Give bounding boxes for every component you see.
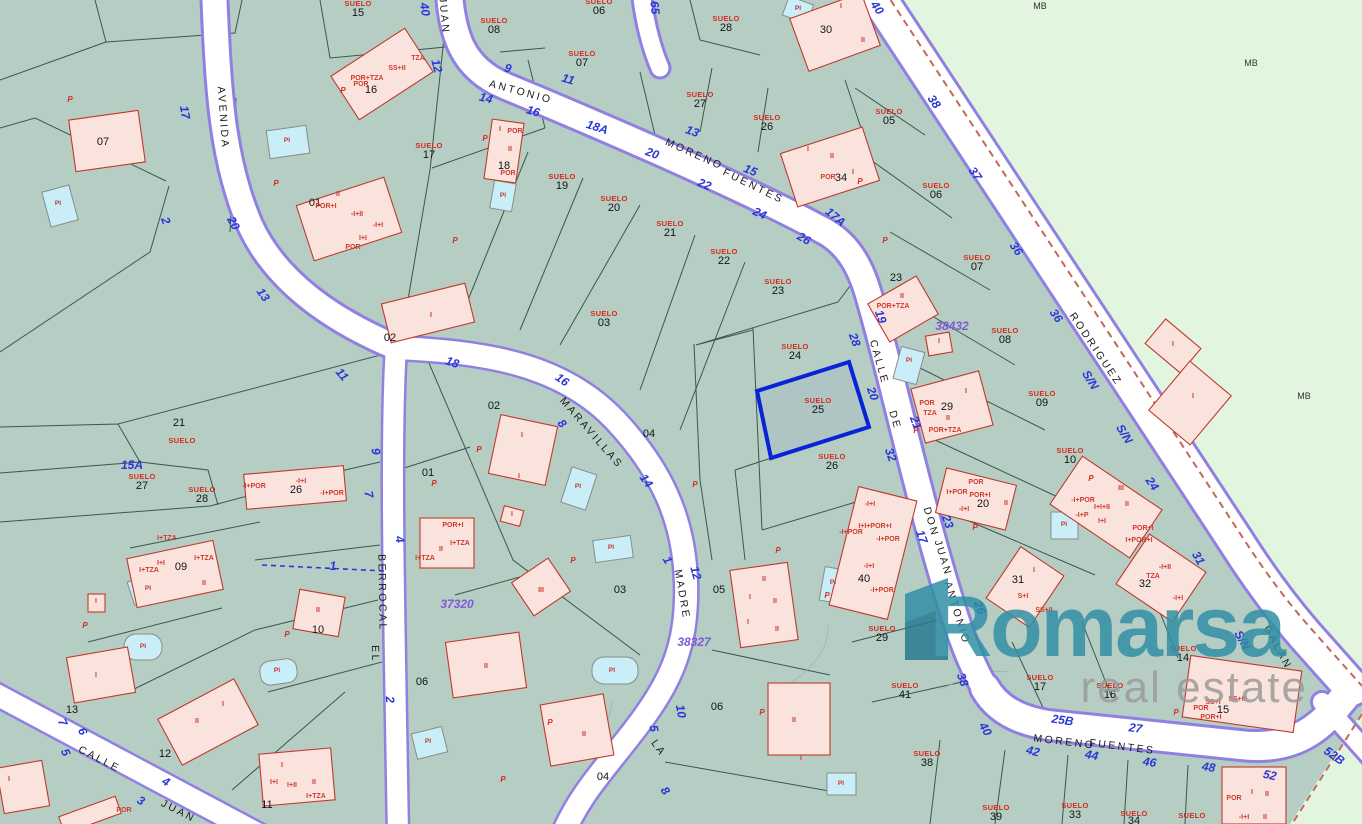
building-storey-label: I bbox=[840, 3, 842, 10]
building-storey-label: II bbox=[946, 415, 950, 422]
building-storey-label: -I+I bbox=[296, 478, 306, 485]
building-storey-label: I bbox=[747, 619, 749, 626]
pool-label: PI bbox=[55, 200, 61, 207]
building-storey-label: II bbox=[484, 663, 488, 670]
parcel-marker-label: P bbox=[500, 775, 506, 784]
building-storey-label: I bbox=[499, 126, 501, 133]
building-storey-label: I bbox=[511, 511, 513, 518]
parcel-marker-label: P bbox=[913, 426, 919, 435]
parcel-number-label: 28 bbox=[196, 493, 208, 505]
parcel-marker-label: P bbox=[972, 523, 978, 532]
building-storey-label: POR bbox=[820, 174, 835, 181]
building-storey-label: II bbox=[316, 607, 320, 614]
building-storey-label: I+II bbox=[287, 782, 297, 789]
parcel-number-label: 07 bbox=[576, 57, 588, 69]
parcel-marker-label: P bbox=[547, 718, 553, 727]
cadastral-ref-label: 37320 bbox=[440, 597, 474, 611]
pool-label: PI bbox=[838, 780, 844, 787]
house-number-label: 5 bbox=[58, 746, 74, 758]
parcel-marker-label: P bbox=[452, 236, 458, 245]
pool-label: PI bbox=[795, 5, 801, 12]
building-storey-label: III bbox=[1118, 485, 1124, 492]
parcel-marker-label: P bbox=[476, 445, 482, 454]
building-storey-label: II bbox=[1263, 814, 1267, 821]
building-storey-label: -I+I bbox=[865, 501, 875, 508]
building-storey-label: II bbox=[1004, 500, 1008, 507]
building-storey-label: I bbox=[1251, 789, 1253, 796]
parcel-number-label: 20 bbox=[608, 202, 620, 214]
building-storey-label: -I+POR bbox=[320, 490, 344, 497]
building-storey-label: I bbox=[1033, 567, 1035, 574]
parcel-number-label: 07 bbox=[97, 136, 109, 148]
building-storey-label: POR+I bbox=[315, 203, 336, 210]
parcel-number-label: 07 bbox=[971, 261, 983, 273]
building-storey-label: II bbox=[900, 293, 904, 300]
house-number-label: 14 bbox=[478, 90, 495, 107]
parcel-number-label: 09 bbox=[1036, 397, 1048, 409]
parcel-marker-label: P bbox=[284, 630, 290, 639]
parcel-number-label: 34 bbox=[1128, 815, 1140, 824]
mb-zone-label: MB bbox=[1033, 1, 1047, 11]
parcel-number-label: 23 bbox=[890, 272, 902, 284]
house-number-label: 3 bbox=[135, 793, 148, 809]
parcel-marker-label: P bbox=[273, 179, 279, 188]
building-storey-label: I+TZA bbox=[139, 567, 159, 574]
building-storey-label: II bbox=[861, 37, 865, 44]
house-number-label: 48 bbox=[1200, 759, 1217, 775]
parcel-number-label: 03 bbox=[598, 317, 610, 329]
building-storey-label: I+POR bbox=[946, 489, 967, 496]
house-number-label: 15A bbox=[121, 458, 143, 472]
parcel-number-label: 19 bbox=[556, 180, 568, 192]
building-storey-label: I+I bbox=[359, 235, 367, 242]
pool-label: PI bbox=[575, 483, 581, 490]
building-storey-label: I+TZA bbox=[306, 793, 326, 800]
parcel-marker-label: P bbox=[482, 134, 488, 143]
building-storey-label: POR bbox=[500, 170, 515, 177]
parcel-number-label: 27 bbox=[136, 480, 148, 492]
pool-label: PI bbox=[274, 667, 280, 674]
building-storey-label: POR+I bbox=[1132, 525, 1153, 532]
suelo-label: SUELO bbox=[1178, 811, 1205, 820]
building-storey-label: -I+POR bbox=[839, 529, 863, 536]
house-number-label: 65 bbox=[647, 0, 662, 15]
building-storey-label: -I+POR bbox=[242, 483, 266, 490]
parcel-number-label: 25 bbox=[812, 404, 824, 416]
house-number-label: 46 bbox=[1141, 754, 1158, 770]
building-storey-label: II bbox=[202, 580, 206, 587]
parcel-marker-label: P bbox=[759, 708, 765, 717]
house-number-label: 13 bbox=[254, 285, 273, 304]
building-storey-label: -I+II bbox=[1159, 564, 1171, 571]
parcel-number-label: 06 bbox=[711, 701, 723, 713]
building-storey-label: II bbox=[775, 626, 779, 633]
house-number-label: 28 bbox=[846, 330, 864, 349]
house-number-label: 16 bbox=[525, 103, 542, 120]
pool-label: PI bbox=[425, 738, 431, 745]
building-storey-label: POR+TZA bbox=[929, 427, 962, 434]
parcel-number-label: 11 bbox=[261, 799, 272, 811]
parcel-number-label: 06 bbox=[593, 5, 605, 17]
parcel-marker-label: P bbox=[692, 480, 698, 489]
house-number-label: S/N bbox=[1113, 422, 1136, 447]
building-storey-label: I+I+II bbox=[1094, 504, 1110, 511]
building-storey-label: SS+II bbox=[388, 65, 405, 72]
pool-label: PI bbox=[830, 579, 836, 586]
house-number-label: 40 bbox=[976, 719, 995, 739]
parcel-marker-label: P bbox=[1088, 474, 1094, 483]
building-storey-label: I+I bbox=[157, 560, 165, 567]
parcel-marker-label: P bbox=[857, 177, 863, 186]
building-storey-label: I bbox=[430, 312, 432, 319]
building-storey-label: POR bbox=[507, 128, 522, 135]
building-storey-label: I+I+POR+I bbox=[858, 523, 891, 530]
parcel-marker-label: P bbox=[775, 546, 781, 555]
building-storey-label: POR+I bbox=[442, 522, 463, 529]
building-storey-label: I bbox=[965, 388, 967, 395]
building-storey-label: III bbox=[538, 587, 544, 594]
parcel-number-label: 17 bbox=[423, 149, 435, 161]
house-number-label: S/N bbox=[1079, 368, 1102, 393]
logo: Romarsa real estate bbox=[905, 578, 1308, 712]
building-storey-label: I bbox=[518, 473, 520, 480]
parcel-marker-label: P bbox=[824, 591, 830, 600]
building-storey-label: II bbox=[312, 779, 316, 786]
street-name-label: LA bbox=[648, 738, 668, 759]
parcel-number-label: 38 bbox=[921, 757, 933, 769]
parcel-number-label: 21 bbox=[173, 417, 185, 429]
building-storey-label: I bbox=[749, 594, 751, 601]
cadastral-ref-label: 38327 bbox=[677, 635, 712, 649]
mb-zone-label: MB bbox=[1297, 391, 1311, 401]
house-number-label: 44 bbox=[1083, 747, 1100, 763]
house-number-label: 42 bbox=[1024, 742, 1042, 759]
building-storey-label: I+TZA bbox=[415, 555, 435, 562]
building-storey-label: POR bbox=[353, 81, 368, 88]
parcel-number-label: 33 bbox=[1069, 809, 1081, 821]
building-storey-label: -I+II bbox=[351, 211, 363, 218]
building-storey-label: I bbox=[95, 598, 97, 605]
house-number-label: 24 bbox=[1142, 473, 1162, 493]
parcel-number-label: 10 bbox=[312, 624, 324, 636]
building-storey-label: II bbox=[582, 731, 586, 738]
parcel-marker-label: P bbox=[67, 95, 73, 104]
parcel-number-label: 04 bbox=[597, 771, 609, 783]
suelo-label: SUELO bbox=[168, 436, 195, 445]
pool-label: PI bbox=[609, 667, 615, 674]
building-storey-label: I bbox=[95, 672, 97, 679]
parcel-number-label: 06 bbox=[930, 189, 942, 201]
street-name-label: JUAN bbox=[436, 0, 451, 35]
parcel-number-label: 28 bbox=[720, 22, 732, 34]
house-number-label: 5 bbox=[646, 724, 661, 733]
parcel-number-label: 29 bbox=[876, 632, 888, 644]
building-storey-label: II bbox=[830, 153, 834, 160]
building-storey-label: -I+I bbox=[959, 506, 969, 513]
building-storey-label: TZA bbox=[411, 55, 425, 62]
parcel-number-label: 10 bbox=[1064, 454, 1076, 466]
parcel-number-label: 30 bbox=[820, 24, 832, 36]
cadastral-ref-label: 38432 bbox=[935, 319, 969, 333]
parcel-number-label: 26 bbox=[761, 121, 773, 133]
parcel-marker-label: P bbox=[340, 86, 346, 95]
parcel-number-label: 41 bbox=[899, 689, 911, 701]
building-storey-label: I bbox=[222, 701, 224, 708]
house-number-label: 40 bbox=[417, 1, 433, 18]
logo-brand-text: Romarsa bbox=[930, 579, 1287, 675]
building-storey-label: I bbox=[852, 169, 854, 176]
building-storey-label: POR+TZA bbox=[877, 303, 910, 310]
logo-tagline-text: real estate bbox=[1081, 663, 1308, 712]
cadastral-map-viewport[interactable]: AVENIDAJUANANTONIOMORENOFUENTESRODRIGUEZ… bbox=[0, 0, 1362, 824]
building-storey-label: I+I bbox=[1098, 518, 1106, 525]
street-name-label: BERROCAL bbox=[375, 554, 388, 632]
building-storey-label: POR bbox=[116, 807, 131, 814]
building-storey-label: POR bbox=[919, 400, 934, 407]
parcel-number-label: 02 bbox=[488, 400, 500, 412]
building-storey-label: II bbox=[762, 576, 766, 583]
building-storey-label: I bbox=[800, 755, 802, 762]
cadastral-map: AVENIDAJUANANTONIOMORENOFUENTESRODRIGUEZ… bbox=[0, 0, 1362, 824]
building-storey-label: POR+I bbox=[1200, 714, 1221, 721]
parcel-number-label: 22 bbox=[718, 255, 730, 267]
parcel-number-label: 26 bbox=[290, 484, 302, 496]
building-storey-label: II bbox=[439, 546, 443, 553]
pool-label: PI bbox=[145, 585, 151, 592]
parcel-number-label: 20 bbox=[977, 498, 989, 510]
building-storey-label: I bbox=[1192, 393, 1194, 400]
building-storey-label: -I+I bbox=[1239, 814, 1249, 821]
house-number-label: 10 bbox=[673, 704, 689, 720]
house-number-label: 7 bbox=[361, 490, 376, 500]
parcel-number-label: 29 bbox=[941, 401, 953, 413]
building-storey-label: I bbox=[521, 432, 523, 439]
parcel-number-label: 26 bbox=[826, 460, 838, 472]
building-storey-label: I+TZA bbox=[157, 535, 177, 542]
building-storey-label: TZA bbox=[923, 410, 937, 417]
parcel-number-label: 05 bbox=[883, 115, 895, 127]
house-number-label: 2 bbox=[383, 695, 398, 704]
building-storey-label: -I+POR bbox=[870, 587, 894, 594]
parcel-number-label: 02 bbox=[384, 332, 396, 344]
building-storey-label: I+POR+I bbox=[1125, 537, 1152, 544]
building-storey-label: POR+I bbox=[969, 492, 990, 499]
building-storey-label: II bbox=[1125, 501, 1129, 508]
building-storey-label: -I+I bbox=[864, 563, 874, 570]
house-number-label: 11 bbox=[560, 71, 576, 88]
building-storey-label: I+TZA bbox=[194, 555, 214, 562]
building-storey-label: -I+POR bbox=[876, 536, 900, 543]
house-number-label: 8 bbox=[658, 784, 673, 798]
house-number-label: 1 bbox=[330, 559, 337, 573]
pool-label: PI bbox=[284, 137, 290, 144]
house-number-label: 11 bbox=[333, 365, 352, 384]
building-storey-label: II bbox=[195, 718, 199, 725]
building-storey-label: -I+I bbox=[373, 222, 383, 229]
building-storey-label: -I+POR bbox=[1071, 497, 1095, 504]
street-name-label: EL bbox=[369, 645, 381, 663]
building-storey-label: POR bbox=[345, 244, 360, 251]
parcel-number-label: 08 bbox=[999, 334, 1011, 346]
building-storey-label: II bbox=[336, 191, 340, 198]
building-storey-label: I+TZA bbox=[450, 540, 470, 547]
house-number-label: 17 bbox=[177, 105, 193, 122]
building-storey-label: -I+P bbox=[1075, 512, 1088, 519]
parcel-marker-label: P bbox=[431, 479, 437, 488]
parcel-number-label: 34 bbox=[835, 172, 847, 184]
building-storey-label: I bbox=[281, 762, 283, 769]
parcel-number-label: 27 bbox=[694, 98, 706, 110]
parcel-number-label: 15 bbox=[352, 7, 364, 19]
pool-label: PI bbox=[906, 357, 912, 364]
parcel-marker-label: P bbox=[82, 621, 88, 630]
parcel-number-label: 12 bbox=[159, 748, 171, 760]
building-storey-label: II bbox=[792, 717, 796, 724]
pool-label: PI bbox=[1061, 521, 1067, 528]
building-storey-label: I bbox=[1172, 341, 1174, 348]
pool-label: PI bbox=[608, 544, 614, 551]
parcel-number-label: 08 bbox=[488, 24, 500, 36]
parcel-marker-label: P bbox=[570, 556, 576, 565]
parcel-number-label: 06 bbox=[416, 676, 428, 688]
parcel-number-label: 03 bbox=[614, 584, 626, 596]
house-number-label: 13 bbox=[684, 122, 702, 140]
parcel-number-label: 13 bbox=[66, 704, 78, 716]
pool-label: PI bbox=[140, 643, 146, 650]
building-storey-label: I+I bbox=[270, 779, 278, 786]
parcel-number-label: 23 bbox=[772, 285, 784, 297]
parcel-number-label: 39 bbox=[990, 811, 1002, 823]
parcel-number-label: 21 bbox=[664, 227, 676, 239]
parcel-number-label: 04 bbox=[643, 428, 655, 440]
building-storey-label: II bbox=[508, 146, 512, 153]
building-storey-label: II bbox=[773, 598, 777, 605]
survey-line bbox=[262, 565, 385, 571]
parcel-number-label: 24 bbox=[789, 350, 801, 362]
building-storey-label: I bbox=[8, 776, 10, 783]
parcel-number-label: 05 bbox=[713, 584, 725, 596]
building-storey-label: POR bbox=[968, 479, 983, 486]
parcel-number-label: 17 bbox=[1034, 681, 1046, 693]
mb-zone-label: MB bbox=[1244, 58, 1258, 68]
parcel-marker-label: P bbox=[882, 236, 888, 245]
parcel-number-label: 09 bbox=[175, 561, 187, 573]
pool-label: PI bbox=[500, 192, 506, 199]
parcel-number-label: 01 bbox=[422, 467, 434, 479]
building-storey-label: I bbox=[807, 146, 809, 153]
parcel-number-label: 40 bbox=[858, 573, 870, 585]
building-storey-label: POR bbox=[1226, 795, 1241, 802]
building-storey-label: II bbox=[1265, 791, 1269, 798]
building-storey-label: I bbox=[938, 338, 940, 345]
